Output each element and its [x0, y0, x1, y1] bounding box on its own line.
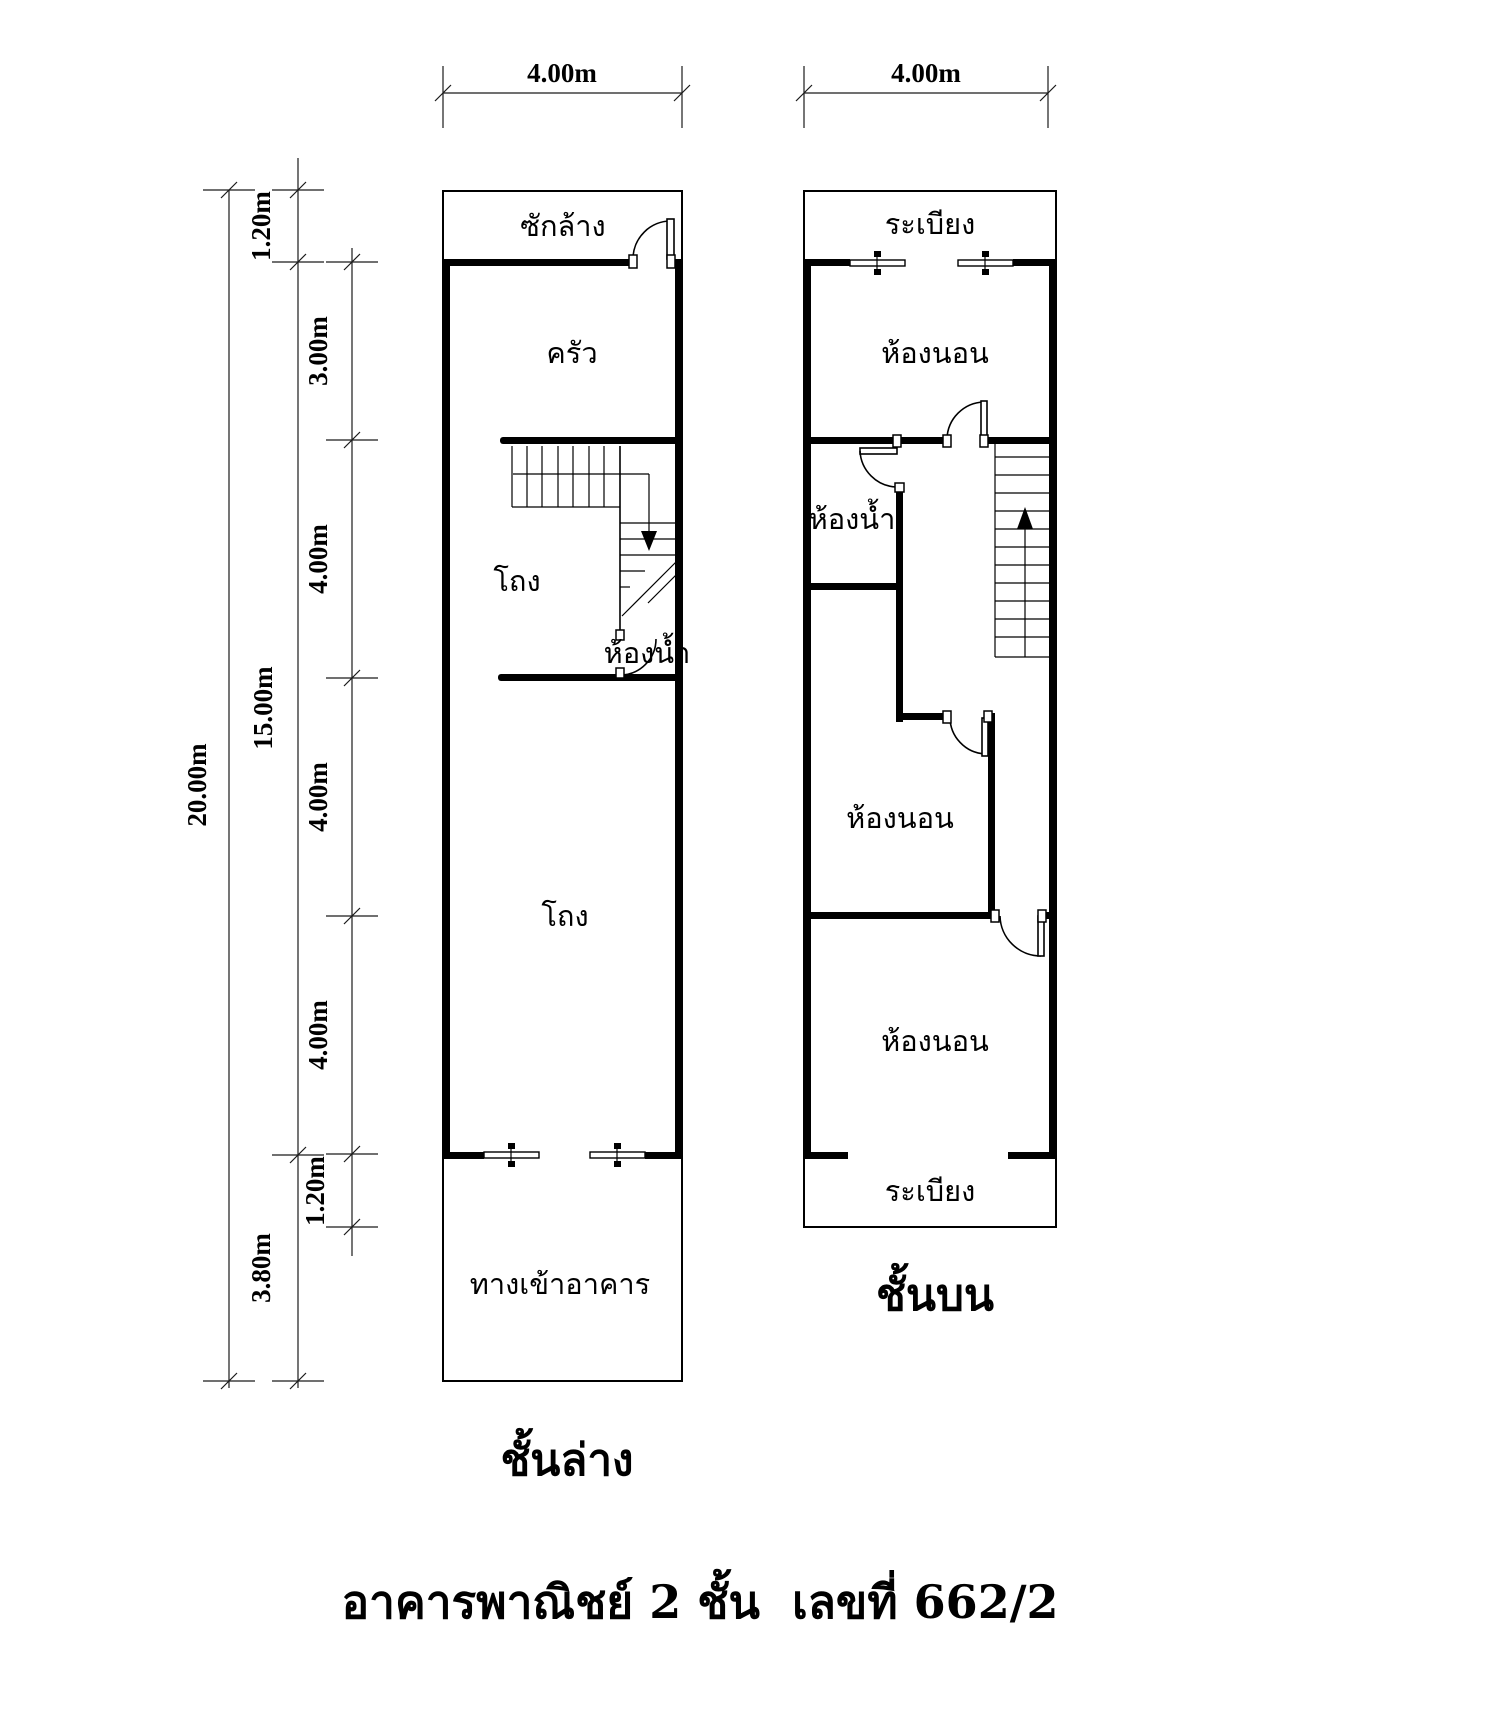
- floor-plan-drawing: 4.00m 4.00m 20.00m 1.20m 15.00m 3.80m: [0, 0, 1487, 1713]
- dimension-top-right: 4.00m: [796, 58, 1056, 128]
- down-arrow: [641, 531, 657, 551]
- laundry-door: [629, 219, 675, 268]
- bedroom-top-door: [943, 401, 988, 447]
- room-laundry: ซักล้าง: [520, 209, 605, 243]
- dim-main-height-label: 15.00m: [248, 666, 278, 750]
- dim-entrance-label: 3.80m: [246, 1233, 276, 1303]
- drawing-title: อาคารพาณิชย์ 2 ชั้น เลขที่ 662/2: [341, 1568, 1058, 1629]
- ground-floor-title: ชั้นล่าง: [500, 1427, 633, 1486]
- dimension-left-chain: 20.00m 1.20m 15.00m 3.80m 3.00m 4.00m 4.…: [182, 158, 378, 1389]
- dim-total-height-label: 20.00m: [182, 743, 212, 827]
- upper-staircase: [995, 444, 1049, 657]
- room-bedroom-middle: ห้องนอน: [846, 801, 954, 835]
- dimension-top-left: 4.00m: [435, 58, 690, 128]
- upper-floor-title: ชั้นบน: [876, 1262, 994, 1321]
- room-balcony-top: ระเบียง: [885, 207, 976, 241]
- ground-staircase: [512, 446, 681, 633]
- room-ground-bathroom: ห้องน้ำ: [604, 632, 691, 670]
- dim-width-right-label: 4.00m: [891, 58, 961, 88]
- ground-walls: [443, 259, 682, 1159]
- room-upper-bathroom: ห้องน้ำ: [809, 498, 896, 536]
- dim-seg-a-label: 4.00m: [303, 524, 333, 594]
- dim-width-left-label: 4.00m: [527, 58, 597, 88]
- dim-back-balcony-label: 1.20m: [246, 191, 276, 261]
- ground-floor-plan: ซักล้าง ครัว โถง ห้องน้ำ โถง ทางเข้าอาคา…: [443, 191, 690, 1486]
- bedroom-middle-door: [943, 711, 992, 756]
- floor-plan-sheet: 4.00m 4.00m 20.00m 1.20m 15.00m 3.80m: [0, 0, 1487, 1713]
- room-balcony-bottom: ระเบียง: [885, 1174, 976, 1208]
- dim-seg-c-label: 4.00m: [303, 1000, 333, 1070]
- room-kitchen: ครัว: [546, 336, 597, 370]
- ground-front-windows: [484, 1143, 645, 1167]
- room-entrance: ทางเข้าอาคาร: [470, 1267, 651, 1301]
- room-hall-lower: โถง: [541, 899, 588, 933]
- room-hall-upper: โถง: [493, 564, 540, 598]
- upper-front-windows: [850, 251, 1013, 275]
- dim-front-balcony-label: 1.20m: [300, 1156, 330, 1226]
- room-bedroom-top: ห้องนอน: [881, 336, 989, 370]
- dim-seg-b-label: 4.00m: [303, 762, 333, 832]
- upper-floor-plan: ระเบียง ห้องนอน ห้องน้ำ ห้องนอน ห้องนอน …: [804, 191, 1056, 1321]
- bedroom-bottom-door: [991, 910, 1046, 956]
- dim-kitchen-label: 3.00m: [303, 316, 333, 386]
- room-bedroom-bottom: ห้องนอน: [881, 1024, 989, 1058]
- up-arrow: [1017, 507, 1033, 529]
